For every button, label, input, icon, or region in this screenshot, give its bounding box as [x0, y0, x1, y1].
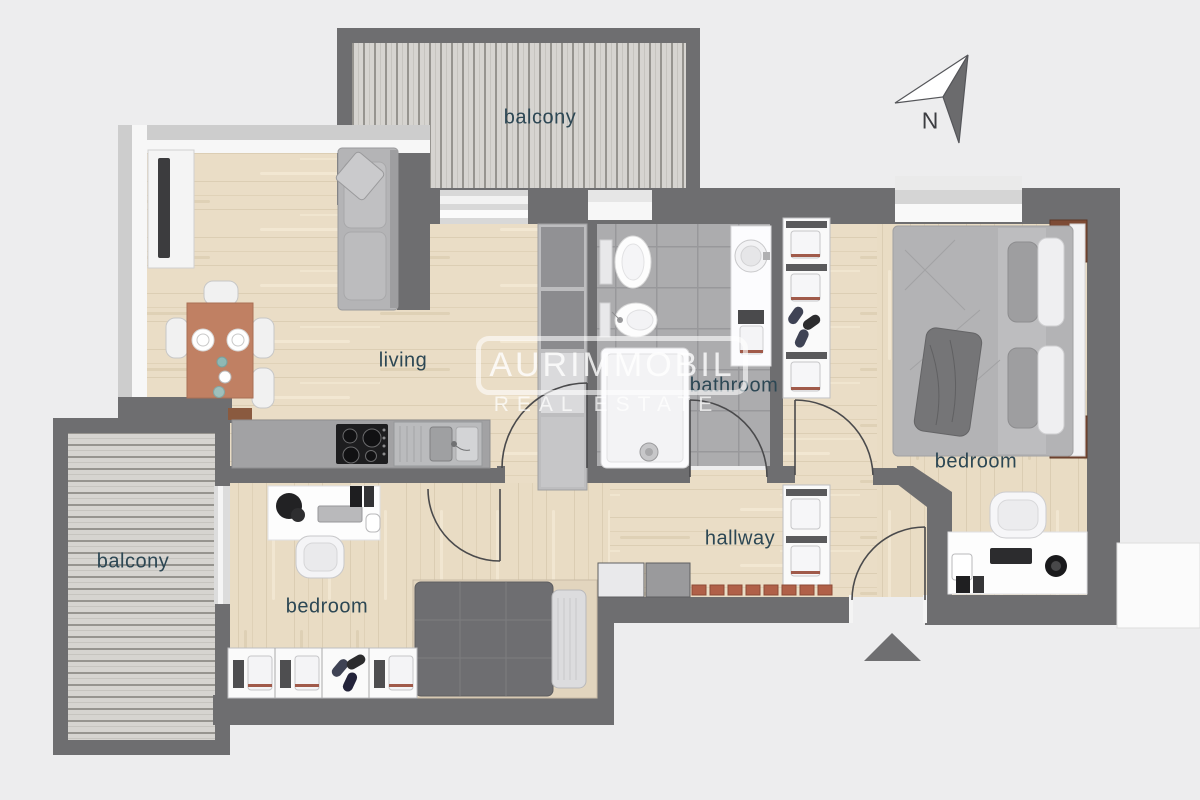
kitchen-end-panel: [228, 408, 252, 420]
pillow-gray-1: [1008, 242, 1038, 322]
label-hallway: hallway: [705, 528, 775, 551]
headphones-inner: [1051, 561, 1061, 571]
vanity-tray: [738, 310, 764, 324]
keyboard-main: [990, 548, 1032, 564]
sideboard: [148, 150, 194, 268]
bed-second-pillow: [552, 590, 586, 688]
desk-chair-seat: [998, 500, 1038, 530]
corner-window-top-frame: [118, 125, 430, 140]
cooktop-knob-2: [383, 437, 386, 440]
wall-right: [1087, 188, 1120, 625]
speaker-1: [350, 486, 362, 507]
sofa-back: [390, 150, 398, 308]
dining-chair-right: [252, 318, 274, 358]
balcony-top-slider: [440, 190, 528, 224]
wardrobe-shelf-bar: [786, 264, 827, 271]
storage-cell-1: [541, 227, 584, 287]
table-deco-2: [219, 371, 231, 383]
label-bedroom-second: bedroom: [286, 596, 368, 619]
hall-cabinet-1: [598, 563, 644, 597]
wall-bedroom-second-bottom: [213, 695, 613, 725]
shoe-rack-cell: [746, 585, 760, 595]
wardrobe-shelf-bar: [786, 536, 827, 543]
plate-2: [227, 329, 249, 351]
shoe-rack-cell: [710, 585, 724, 595]
wall-hallway-top-a: [218, 466, 427, 483]
wardrobe-towel-stripe: [389, 684, 413, 687]
sideboard-body: [148, 150, 194, 268]
wardrobe-box: [374, 660, 385, 688]
sink-basin-1: [430, 427, 452, 461]
burner-3: [343, 447, 359, 463]
dining-chair-top: [204, 281, 238, 305]
wardrobe-towel-stripe: [791, 571, 820, 574]
dining-table: [187, 303, 253, 398]
plate-1: [192, 329, 214, 351]
storage-cell-4: [541, 417, 584, 487]
dining-chair-left: [166, 318, 188, 358]
table-deco-1: [217, 357, 227, 367]
balcony-left-slider-glass: [218, 486, 223, 604]
bidet-basin: [627, 310, 653, 330]
wardrobe-shelf-bar: [786, 221, 827, 228]
label-balcony-left: balcony: [97, 551, 169, 574]
desk-box-2: [973, 576, 984, 593]
wall-bathroom-bottom-b: [767, 466, 795, 483]
wall-bathroom-bottom-a: [587, 466, 690, 483]
desk-chair-second-seat: [304, 543, 337, 571]
wall-hallway-top-b: [873, 468, 900, 485]
wardrobe-towel: [791, 499, 820, 529]
balcony-top-slider-glass2: [440, 210, 528, 218]
wardrobe-towel-stripe: [248, 684, 272, 687]
wardrobe-box: [280, 660, 291, 688]
sofa-cushion-2: [344, 232, 386, 300]
pillow-white-1: [1038, 238, 1064, 326]
wardrobe-towel: [791, 362, 820, 391]
balcony-left-deck: [68, 433, 215, 740]
shoe-rack-cell: [818, 585, 832, 595]
watermark-tagline: REAL ESTATE: [464, 393, 750, 417]
wall-bedroom-second-right: [597, 597, 614, 725]
north-label: N: [922, 108, 939, 135]
pillow-gray-2: [1008, 348, 1038, 428]
label-balcony-top: balcony: [504, 107, 576, 130]
balcony-top-slider-glass: [440, 196, 528, 204]
shoe-rack-cell: [764, 585, 778, 595]
dining-chair-bottom: [252, 368, 274, 408]
pillow-white-2: [1038, 346, 1064, 434]
vanity-basin-inner: [741, 246, 761, 266]
bedroom-window-frame: [895, 190, 1022, 204]
bedroom-window-glass: [895, 204, 1022, 222]
floor-plan-scene: balcony balcony living bathroom bedroom …: [0, 0, 1200, 800]
wall-living-left-bottom: [118, 397, 232, 423]
cooktop-knob-4: [383, 453, 386, 456]
label-living: living: [379, 350, 428, 373]
wardrobe-towel-stripe: [791, 387, 820, 390]
table-deco-3: [214, 387, 225, 398]
toilet-tank: [600, 240, 612, 284]
wardrobe-towel-stripe: [295, 684, 319, 687]
corner-window-left-frame: [118, 125, 132, 397]
shoe-rack-cell: [782, 585, 796, 595]
shower-drain-cap: [645, 448, 653, 456]
watermark-brand: AURIMMOBIL: [476, 336, 748, 395]
desk-box-1: [956, 576, 970, 593]
shoe-rack-cell: [692, 585, 706, 595]
office-chair-arm: [291, 508, 305, 522]
wall-hallway-bottom: [597, 597, 853, 623]
shoe-rack-cell: [728, 585, 742, 595]
wardrobe-towel-stripe: [791, 297, 820, 300]
cooktop-knob-3: [383, 445, 386, 448]
label-bedroom-main: bedroom: [935, 451, 1017, 474]
wardrobe-shelf-bar: [786, 489, 827, 496]
wardrobe-shelf-bar: [786, 352, 827, 359]
cooktop-knob-1: [383, 429, 386, 432]
hall-cabinet-2: [646, 563, 690, 597]
neighbor-slab: [1117, 543, 1200, 628]
bidet-mount: [600, 303, 610, 337]
wardrobe-towel-stripe: [791, 254, 820, 257]
mouse: [366, 514, 380, 532]
sofa: [335, 148, 398, 310]
entrance-arrow-icon: [864, 633, 921, 661]
toilet-seat: [622, 244, 644, 280]
wall-door-post: [497, 466, 505, 483]
bathroom-window-glass: [588, 202, 652, 220]
wall-bathroom-right: [770, 224, 783, 466]
sink-basin-2: [456, 427, 478, 461]
bathroom-window-frame: [588, 190, 652, 202]
keyboard-second: [318, 506, 362, 522]
bedroom-window-sill: [895, 176, 1022, 190]
shoe-rack-cell: [800, 585, 814, 595]
corner-window-left-glass: [132, 125, 147, 397]
burner-1: [343, 429, 357, 443]
speaker-2: [364, 486, 374, 507]
wardrobe-towel: [791, 274, 820, 301]
vanity-faucet: [763, 252, 770, 260]
wardrobe-box: [233, 660, 244, 688]
burner-4: [366, 451, 377, 462]
tv-unit: [158, 158, 170, 258]
wardrobe-towel: [791, 231, 820, 258]
burner-2: [363, 429, 381, 447]
balcony-left: [53, 418, 230, 755]
wall-bedroom-main-bottom: [925, 595, 1120, 625]
bed-second-duvet: [415, 582, 553, 696]
